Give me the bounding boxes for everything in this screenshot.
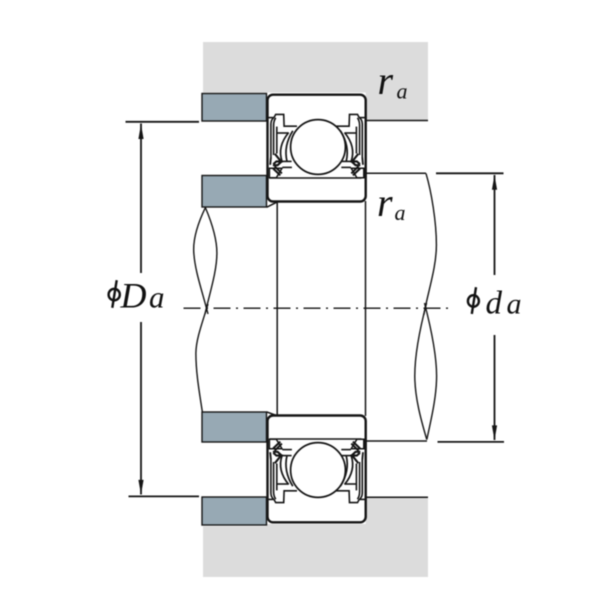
svg-text:a: a <box>149 280 165 315</box>
svg-text:a: a <box>397 79 408 104</box>
svg-text:r: r <box>377 180 393 225</box>
svg-text:a: a <box>395 200 406 225</box>
svg-text:a: a <box>507 288 522 321</box>
svg-text:r: r <box>378 58 394 103</box>
svg-text:D: D <box>120 276 147 316</box>
svg-text:d: d <box>486 286 503 322</box>
